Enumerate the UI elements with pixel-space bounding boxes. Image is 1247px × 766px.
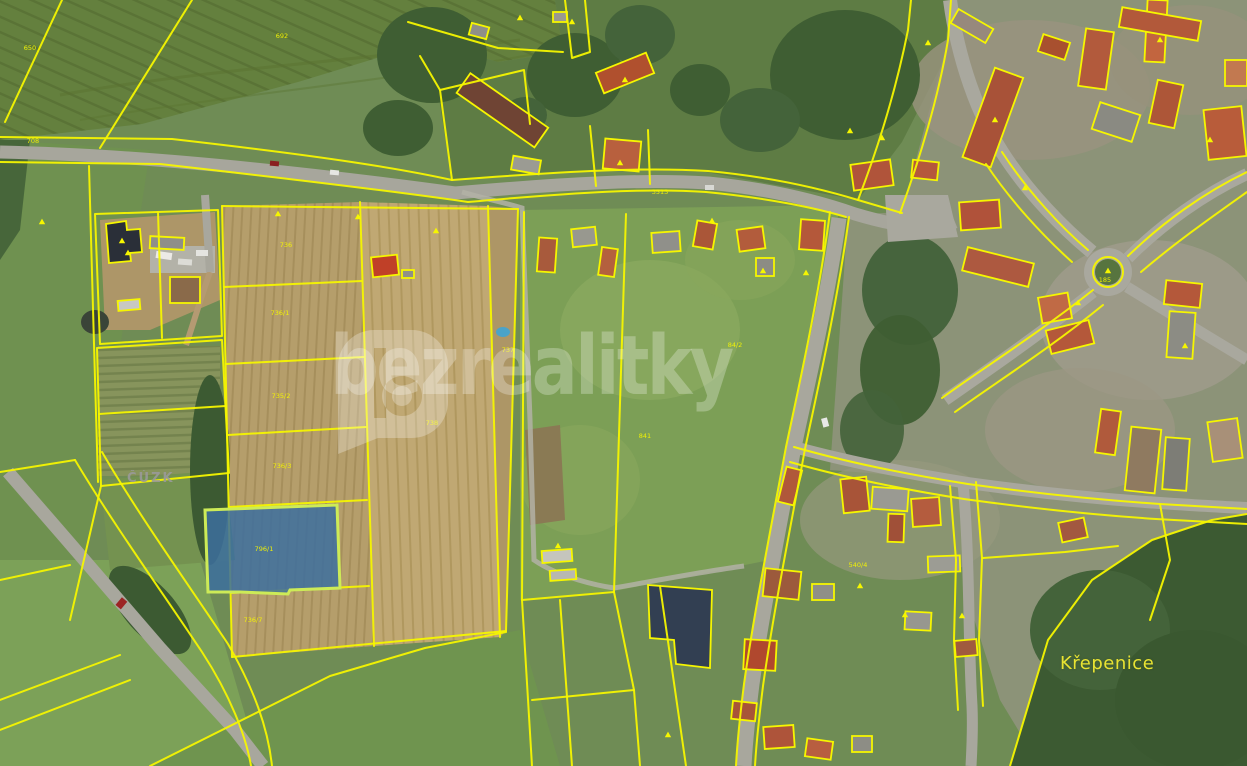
parcel-number: 735/2 (272, 392, 291, 400)
parcel-number: 736/7 (244, 616, 263, 624)
parcel-number: 708 (27, 137, 39, 145)
parcel-number: 736/3 (273, 462, 292, 470)
parcel-number: 185 (1099, 276, 1111, 284)
terrain-layer (0, 0, 1247, 766)
parcel-number: 796/1 (255, 545, 274, 553)
parcel-number: 540/4 (849, 561, 868, 569)
parcel-number: 84/2 (728, 341, 743, 349)
aerial-map[interactable]: 6507086923513736736/1735/2736/3796/1736/… (0, 0, 1247, 766)
parcel-number: 692 (276, 32, 288, 40)
parcel-number: 737 (502, 346, 514, 354)
parcel-number: 738 (426, 419, 438, 427)
parcel-number: 841 (639, 432, 651, 440)
map-viewport[interactable]: 6507086923513736736/1735/2736/3796/1736/… (0, 0, 1247, 766)
parcel-number: 650 (24, 44, 36, 52)
parcel-number: 736 (280, 241, 292, 249)
parcel-number: 736/1 (271, 309, 290, 317)
parcel-number: 3513 (652, 188, 669, 196)
